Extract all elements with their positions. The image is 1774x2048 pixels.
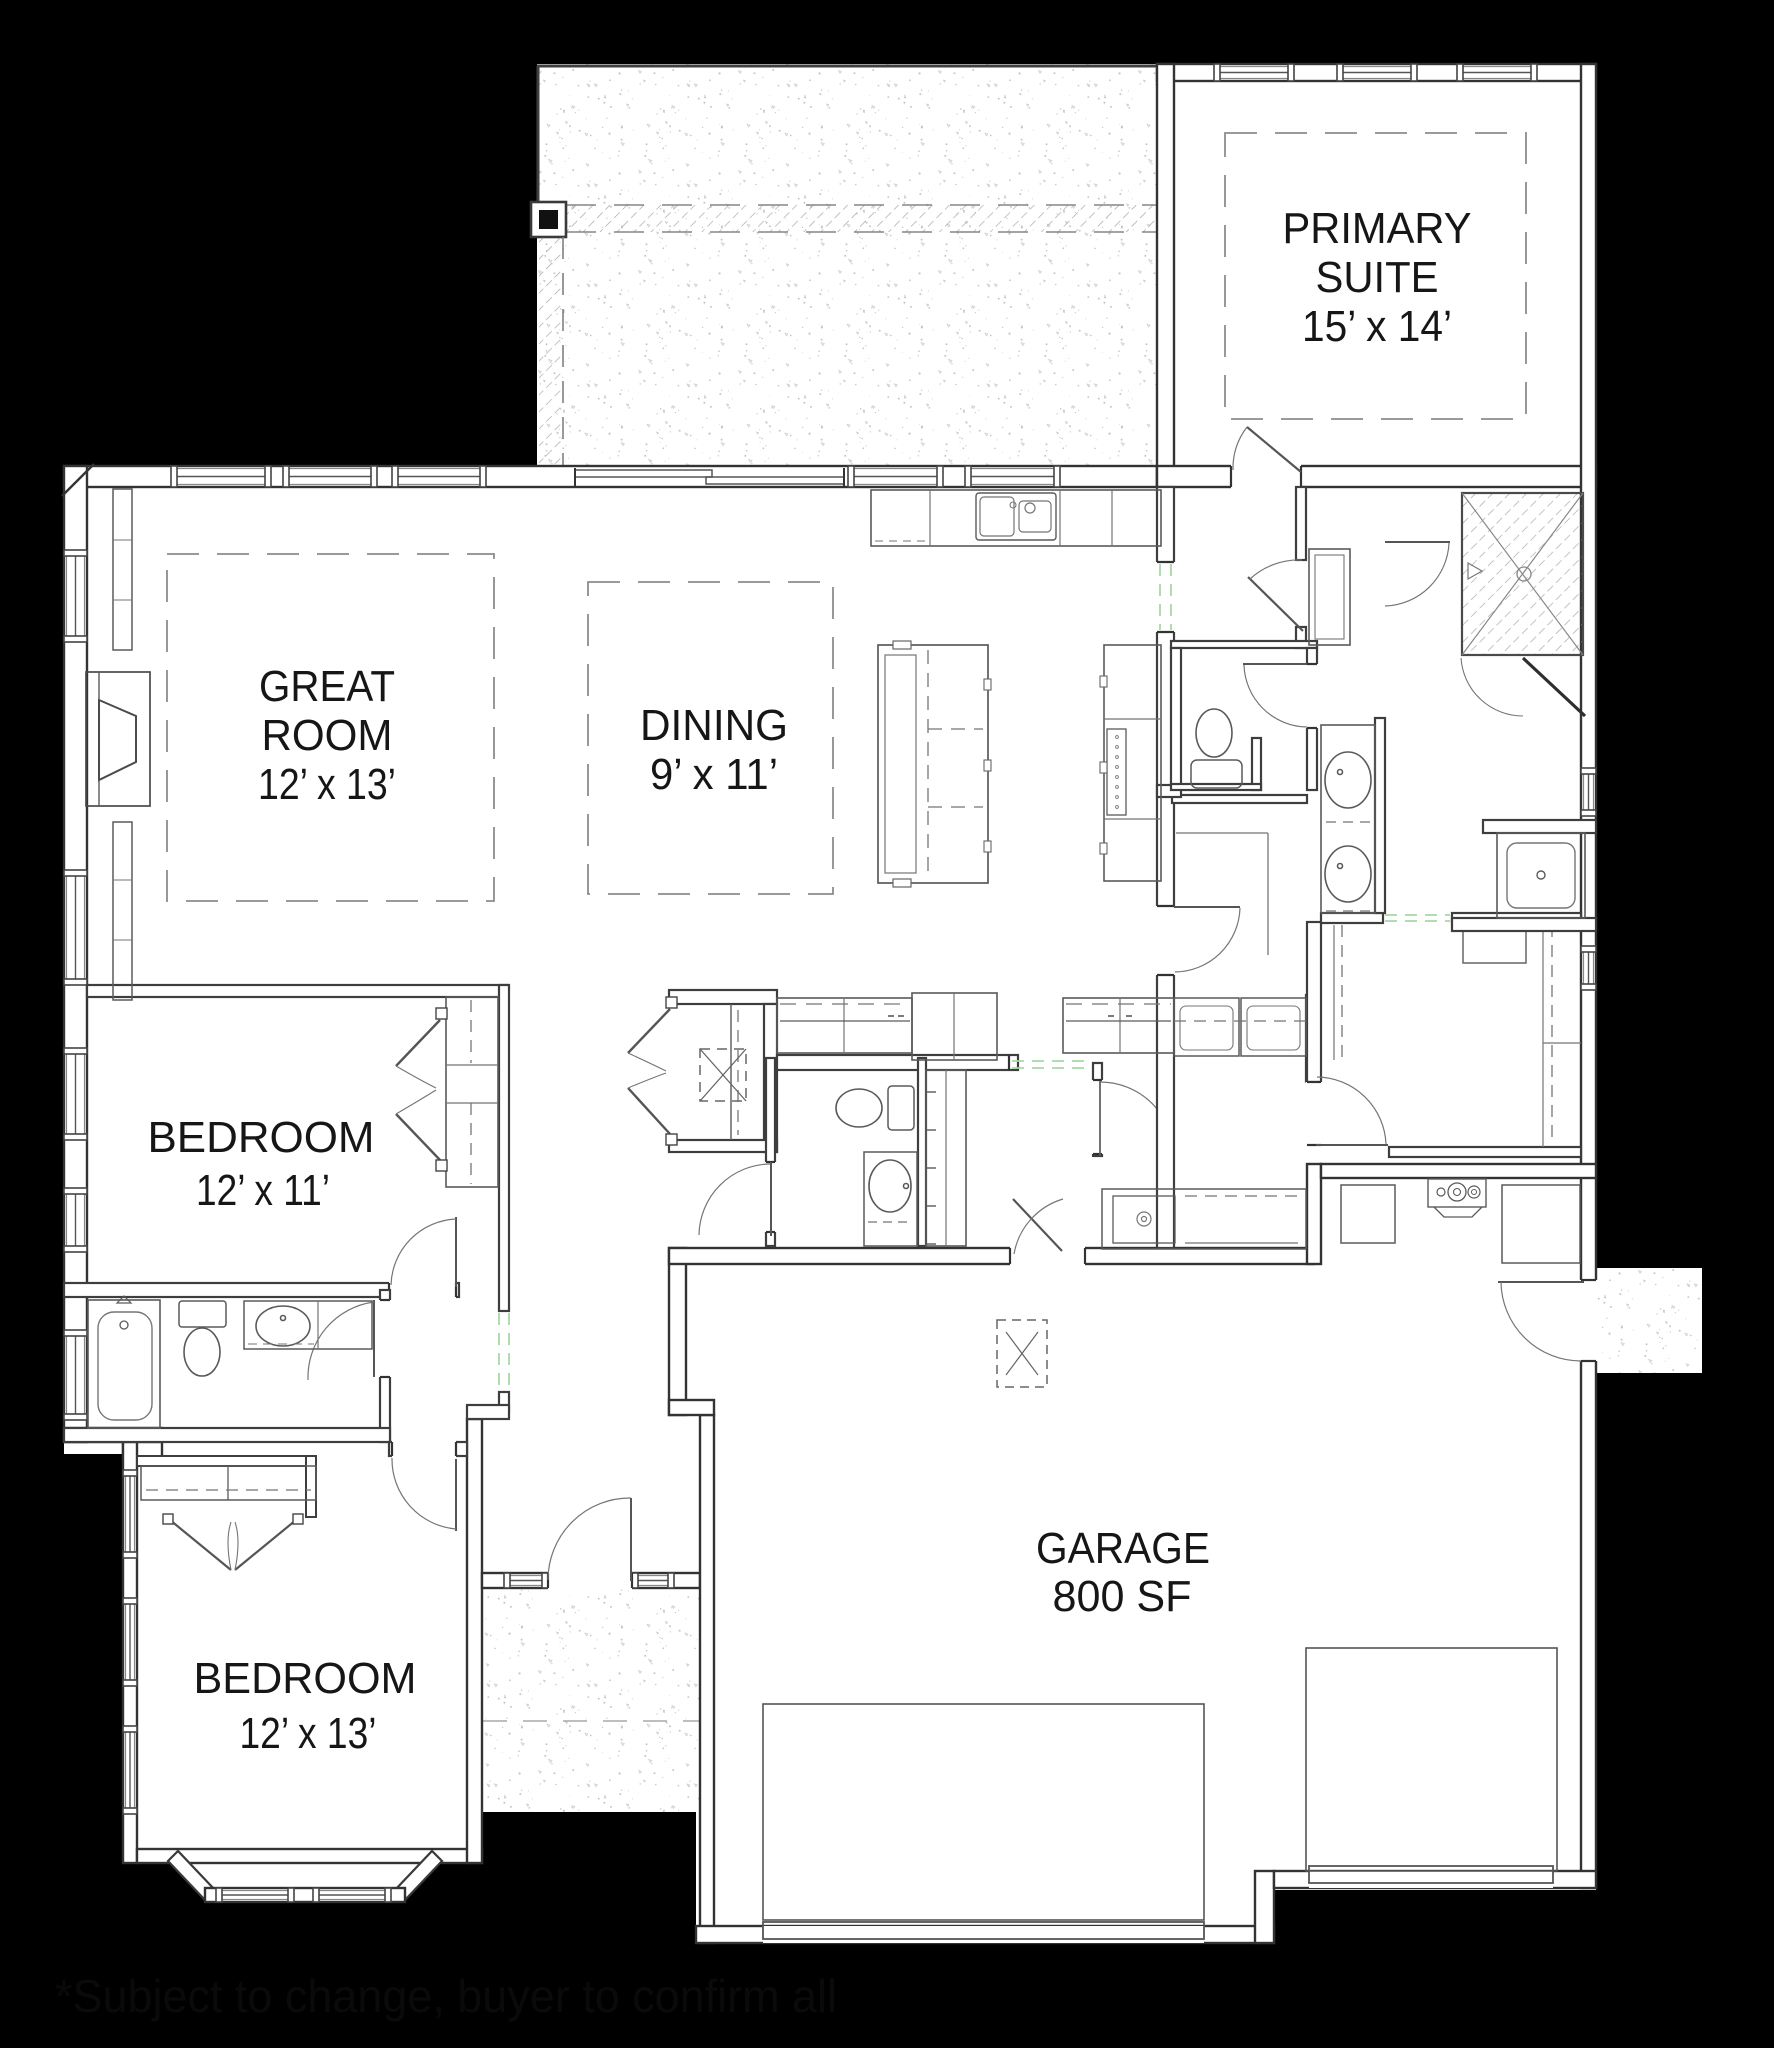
svg-text:12’ x 13’: 12’ x 13’ (258, 760, 396, 809)
svg-text:GREAT: GREAT (259, 662, 395, 711)
svg-text:GARAGE: GARAGE (1036, 1524, 1210, 1573)
svg-text:15’ x 14’: 15’ x 14’ (1302, 302, 1452, 351)
svg-text:800 SF: 800 SF (1053, 1572, 1192, 1621)
svg-text:BEDROOM: BEDROOM (148, 1113, 375, 1162)
svg-text:SUITE: SUITE (1316, 253, 1439, 302)
svg-text:*Subject to change, buyer to c: *Subject to change, buyer to confirm all (55, 1970, 837, 2022)
svg-text:12’ x 11’: 12’ x 11’ (196, 1166, 330, 1215)
svg-text:PRIMARY: PRIMARY (1283, 204, 1472, 253)
svg-text:DINING: DINING (640, 701, 788, 750)
svg-text:9’ x 11’: 9’ x 11’ (650, 750, 778, 799)
svg-text:ROOM: ROOM (262, 711, 393, 760)
svg-text:BEDROOM: BEDROOM (194, 1654, 417, 1703)
svg-text:12’ x 13’: 12’ x 13’ (240, 1709, 377, 1758)
